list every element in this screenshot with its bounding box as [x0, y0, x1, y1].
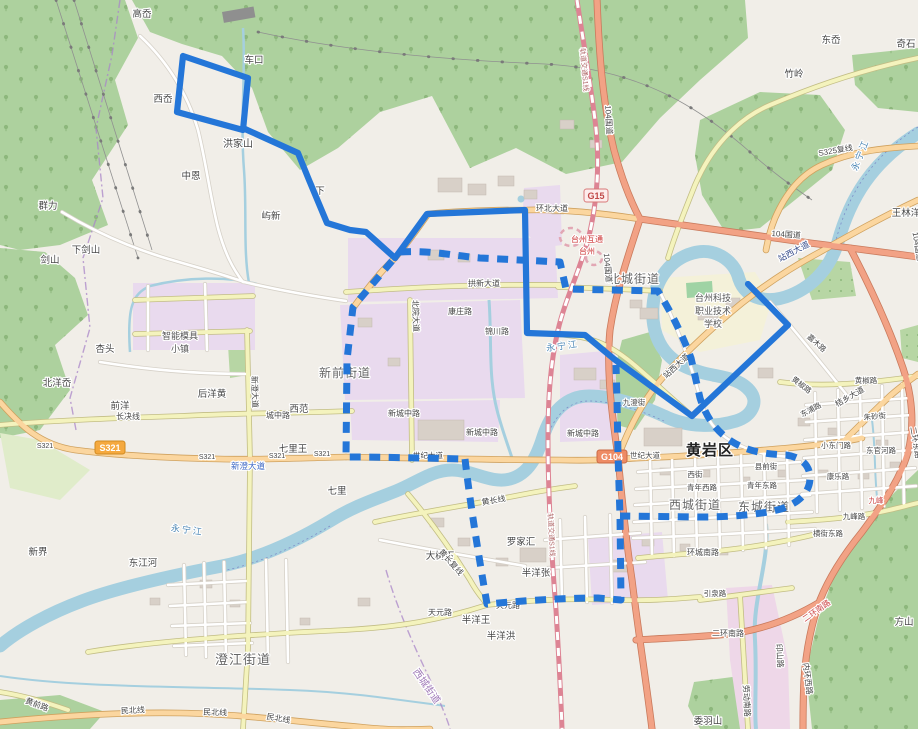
map-label: 高岙 [132, 8, 152, 20]
map-label: 康乐路 [827, 471, 850, 481]
map-label: 印山路 [774, 643, 786, 668]
map-label: 杏头 [95, 343, 114, 355]
map-label: 新城中路 [388, 408, 420, 418]
building [150, 598, 160, 605]
map-label: 西范 [289, 403, 309, 415]
map-label: 锦川路 [485, 326, 509, 336]
landuse-area [340, 300, 525, 400]
building [358, 598, 370, 606]
building [758, 368, 773, 378]
map-label: 方山 [894, 616, 913, 628]
building [640, 308, 658, 319]
map-label: 朱砂街 [863, 410, 887, 422]
building [630, 300, 642, 308]
map-label: 北院大道 [410, 300, 421, 332]
map-label: 青年西路 [687, 482, 717, 492]
building [644, 428, 682, 446]
building [560, 120, 574, 129]
map-label: 环北大道 [536, 203, 568, 213]
map-label: 黄岩区 [686, 441, 734, 459]
map-label: 小东门路 [821, 440, 851, 450]
building [458, 538, 470, 546]
building [828, 428, 838, 435]
road-shield-ref: S321 [99, 443, 120, 453]
map-label: 民北线 [203, 707, 227, 718]
map-label: 北洋岙 [43, 377, 72, 389]
map-label: 新城中路 [567, 428, 599, 438]
map-label: 横街东路 [813, 528, 843, 538]
map-label: 屿新 [261, 210, 281, 222]
map-viewport[interactable]: G15S321G104高岙车口西岙洪家山中恩屿新群力下剑山剑山杏头北洋岙前洋后洋… [0, 0, 918, 729]
map-label: 东岙 [821, 34, 841, 46]
map-label: S321 [37, 443, 53, 450]
map-label: 二环南路 [712, 628, 744, 638]
map-label: 中恩 [181, 170, 200, 182]
map-label: 东官河路 [866, 445, 896, 455]
map-label: 下剑山 [72, 244, 101, 256]
map-label: 九峰路 [843, 511, 866, 521]
map-label: 西岙 [153, 94, 173, 105]
map-label: 黄椒路 [855, 375, 878, 385]
map-label: 智能模具 [162, 330, 198, 341]
pond [518, 196, 525, 203]
building [358, 318, 372, 327]
map-label: 西城街道 [669, 498, 721, 512]
map-label: 拱新大道 [468, 278, 500, 288]
map-label: 洪家山 [223, 137, 253, 150]
map-label: 世纪大道 [630, 450, 660, 460]
map-label: 台州互通 [571, 234, 603, 244]
map-label: 东江河 [129, 557, 158, 569]
map-label: 民北线 [121, 704, 145, 715]
map-label: 台州科技 [695, 292, 731, 303]
map-label: 长决线 [116, 411, 140, 421]
building [468, 184, 486, 195]
map-label: 半洋张 [522, 567, 551, 579]
map-label: 半洋洪 [487, 630, 516, 642]
map-label: S321 [199, 454, 215, 461]
map-label: 九峰 [869, 495, 884, 505]
map-label: 劳动南路 [741, 685, 753, 717]
building [498, 176, 514, 186]
landuse-pattern [900, 325, 918, 362]
map-label: 王林洋 [892, 207, 918, 219]
map-label: 九澄街 [623, 397, 646, 407]
map-label: 奇石 [896, 38, 915, 50]
map-label: 前洋 [110, 400, 130, 412]
building [438, 178, 462, 192]
map-label: 车口 [244, 54, 263, 66]
map-label: 小镇 [171, 343, 189, 354]
map-label: 104国道 [603, 105, 615, 135]
map-label: 引泉路 [704, 588, 727, 598]
map-label: 北城街道 [608, 272, 660, 286]
map-label: 西街 [688, 469, 703, 479]
map-label: 新澄大道 [249, 376, 260, 408]
map-label: 康庄路 [448, 306, 472, 316]
map-label: S321 [269, 453, 285, 460]
map-label: 县前街 [755, 461, 778, 471]
map-label: 城中路 [266, 410, 290, 420]
map-label: S321 [314, 451, 330, 458]
map-label: 104国道 [771, 228, 801, 240]
map-label: 罗家汇 [507, 536, 536, 548]
map-label: 七里 [327, 486, 346, 497]
map-label: 澄江街道 [215, 652, 271, 667]
map-label: 群力 [38, 200, 57, 212]
map-label: 台州 [579, 246, 595, 256]
map-label: 天元路 [428, 607, 452, 617]
map-label: 新澄大道 [231, 461, 266, 471]
map-canvas[interactable]: G15S321G104高岙车口西岙洪家山中恩屿新群力下剑山剑山杏头北洋岙前洋后洋… [0, 0, 918, 729]
map-label: 半洋王 [462, 614, 491, 626]
map-label: 新界 [28, 546, 48, 558]
building [524, 190, 537, 199]
map-label: 职业技术 [695, 305, 731, 316]
road-shield-ref: G15 [587, 191, 604, 201]
building [574, 368, 596, 380]
map-label: 青年东路 [747, 480, 777, 490]
map-label: 新城中路 [466, 427, 498, 437]
map-label: 竹岭 [784, 68, 804, 80]
building [388, 358, 400, 366]
map-label: 环城南路 [687, 547, 719, 557]
building [418, 420, 464, 440]
building [520, 548, 546, 562]
map-label: 剑山 [40, 254, 59, 266]
map-label: 后洋黄 [198, 388, 227, 400]
map-label: 学校 [704, 318, 722, 329]
map-label: 委羽山 [694, 715, 723, 727]
building [300, 618, 310, 625]
